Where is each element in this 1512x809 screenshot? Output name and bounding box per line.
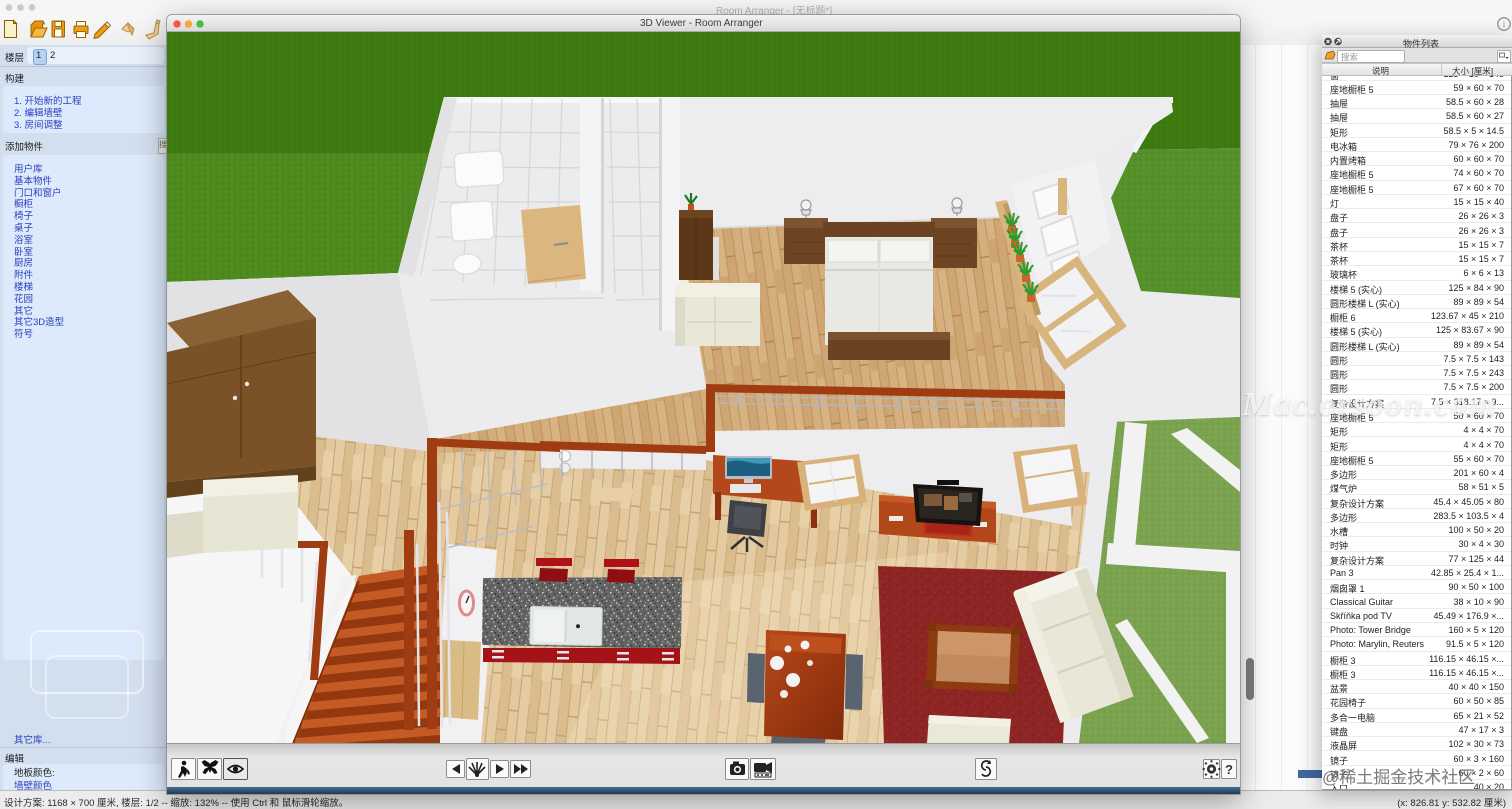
svg-text:i: i xyxy=(1503,19,1506,29)
svg-text:?: ? xyxy=(1225,762,1233,777)
